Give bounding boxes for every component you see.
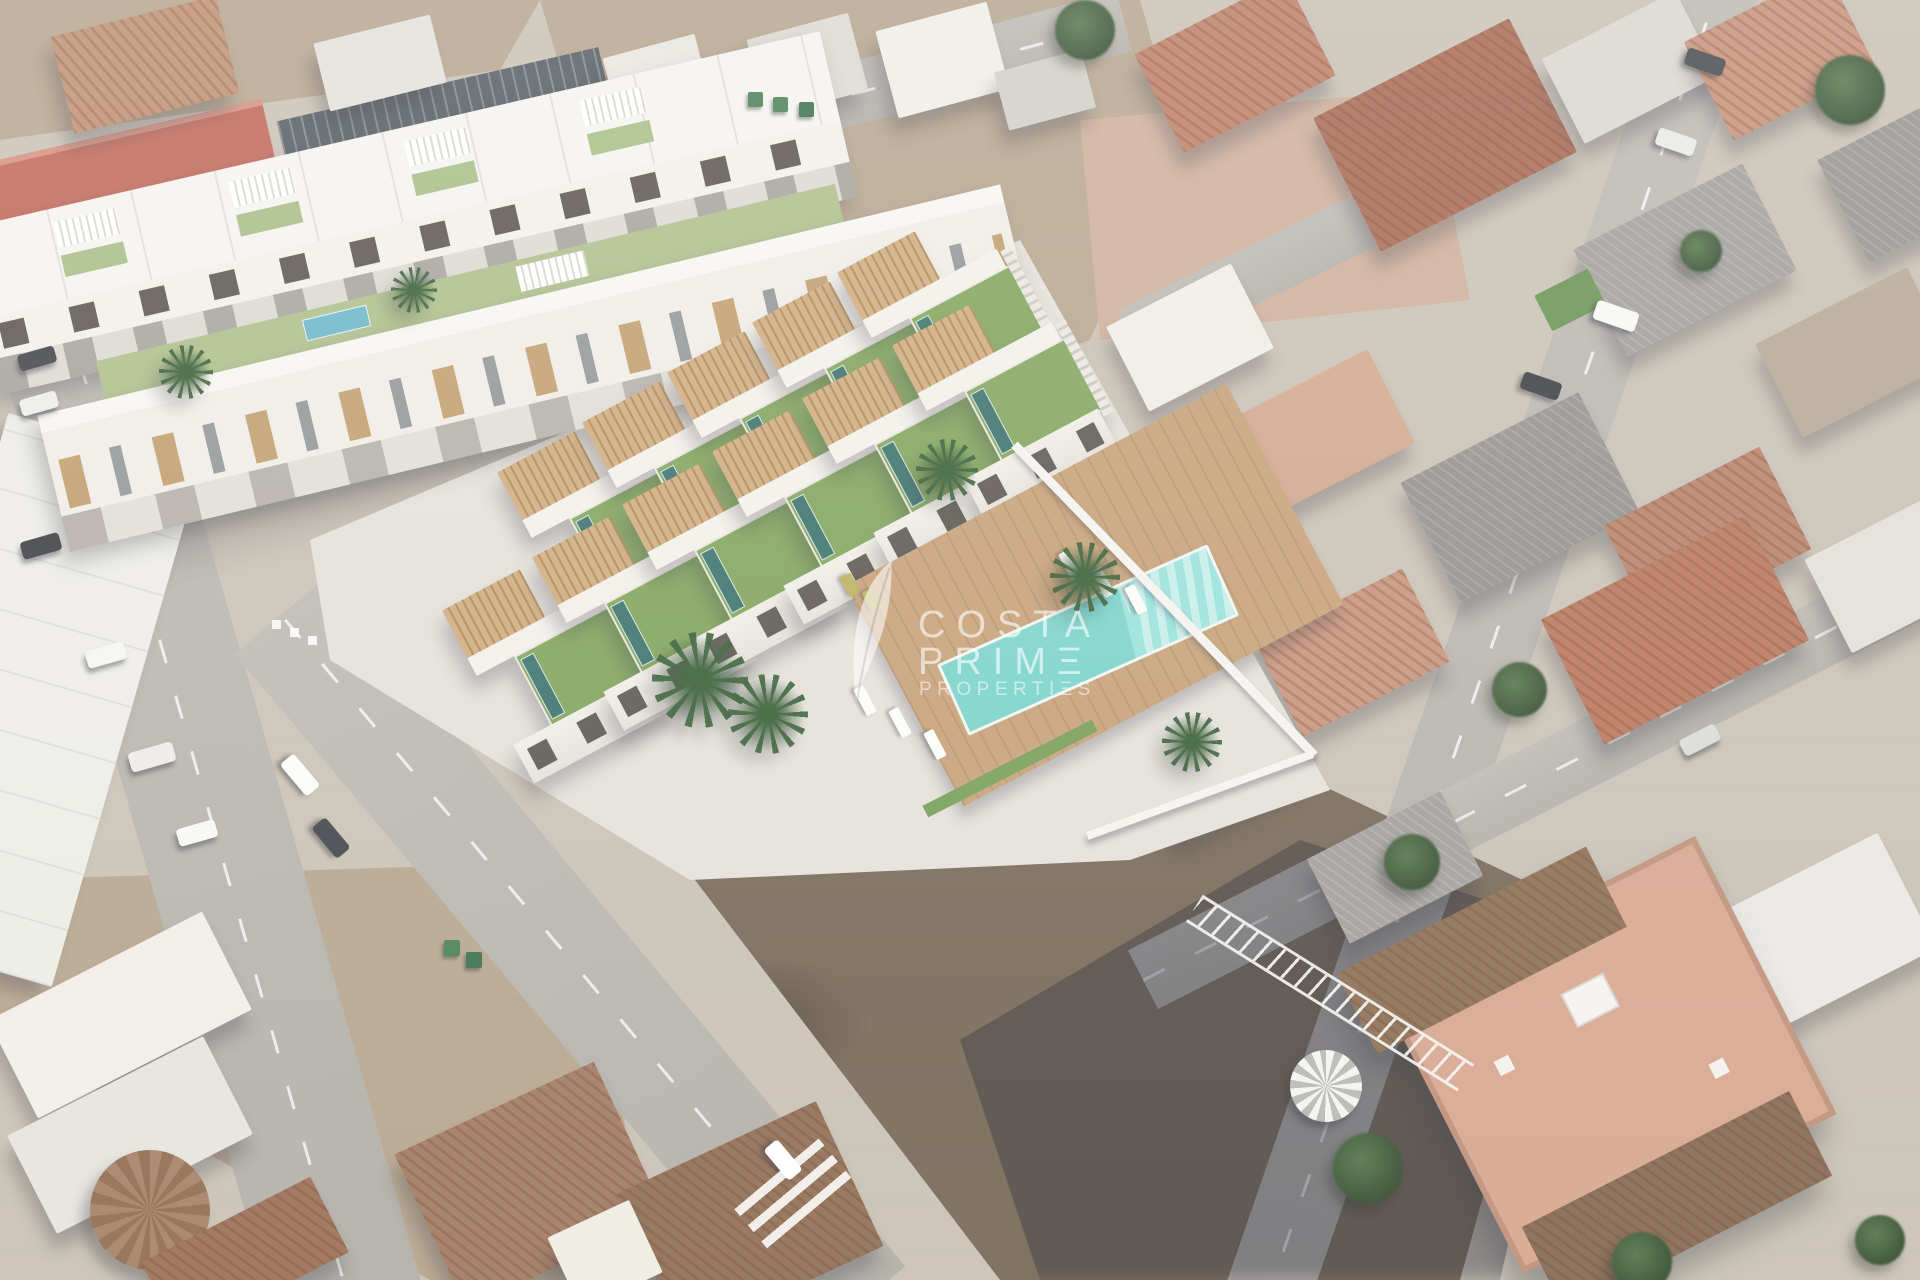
watermark-line-3: PROPERTIΞS: [919, 679, 1096, 701]
aerial-property-photo: COSTA PRIMΞ PROPERTIΞS: [0, 0, 1920, 1280]
feather-icon: [802, 557, 927, 712]
watermark-line-2: PRIMΞ: [918, 641, 1093, 684]
watermark: COSTA PRIMΞ PROPERTIΞS: [815, 560, 1115, 720]
